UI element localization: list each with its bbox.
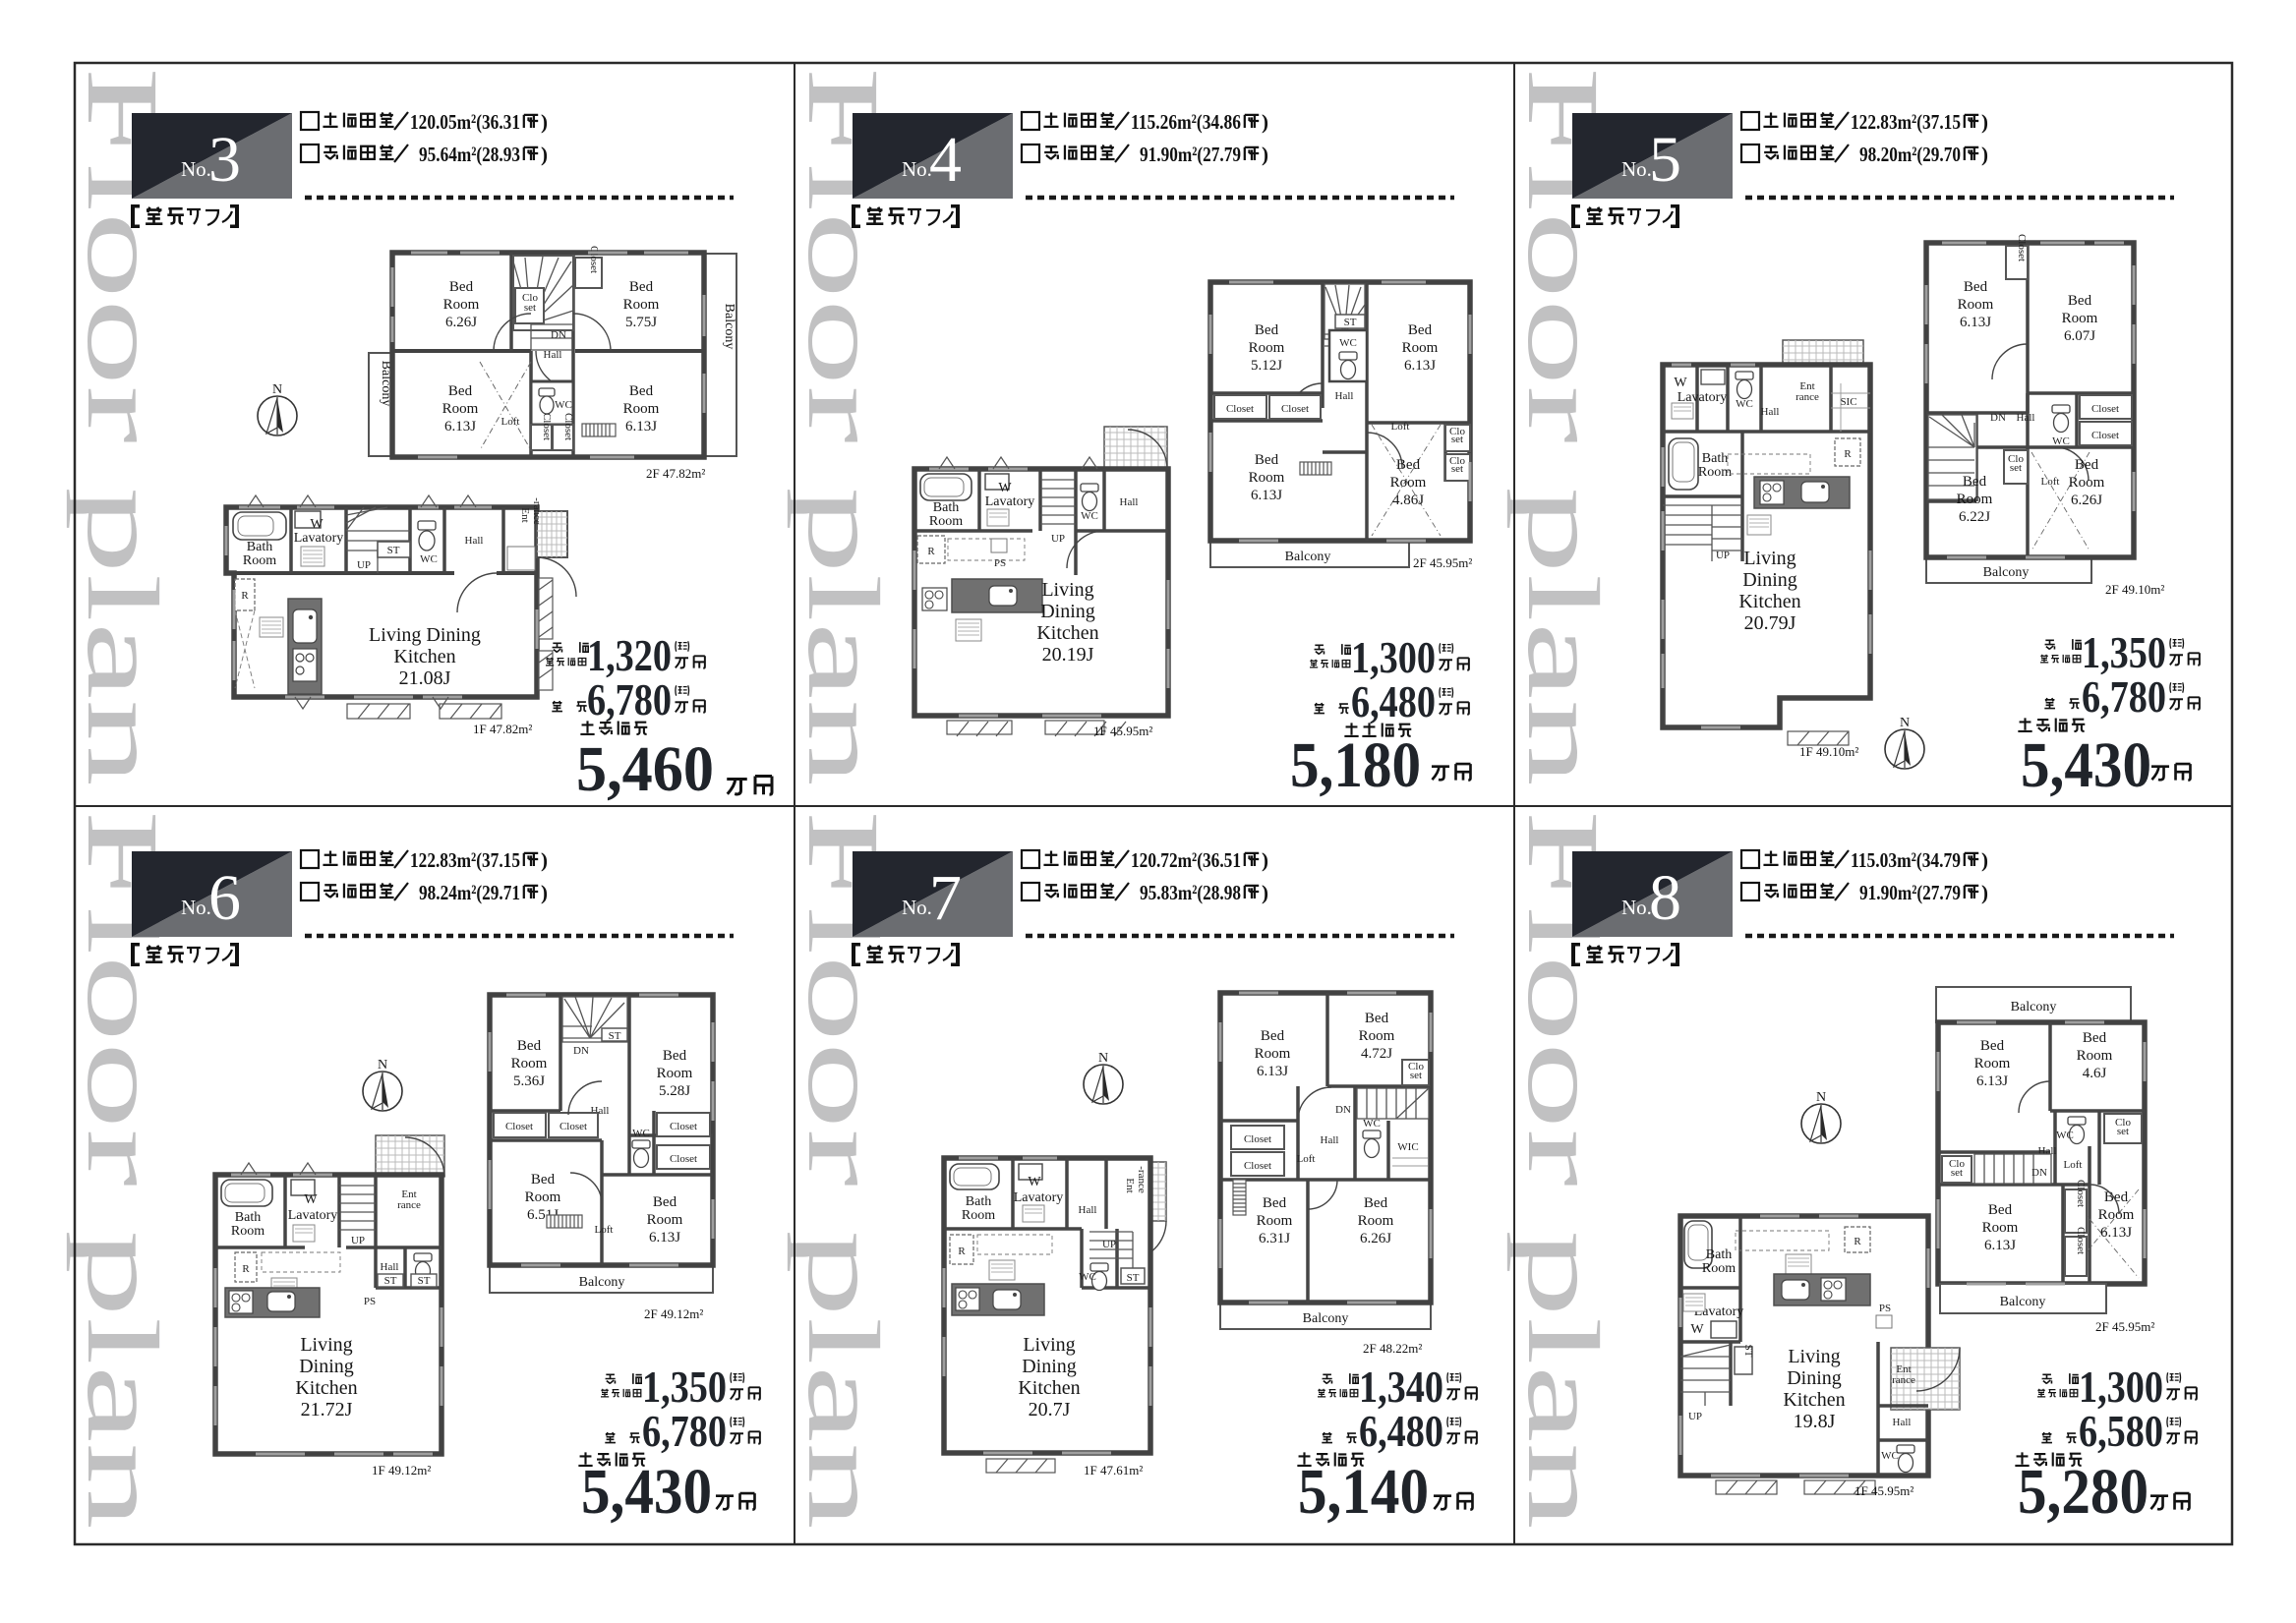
svg-text:Bed: Bed — [1408, 322, 1433, 338]
svg-text:122.83m²(37.15: 122.83m²(37.15 — [410, 848, 520, 872]
svg-text:5.36J: 5.36J — [513, 1073, 545, 1089]
svg-text:DN: DN — [1335, 1104, 1351, 1116]
svg-text:Kitchen: Kitchen — [1783, 1389, 1845, 1411]
svg-text:Dining: Dining — [1022, 1356, 1077, 1377]
svg-text:Bed: Bed — [629, 279, 654, 295]
svg-text:Bath: Bath — [1706, 1247, 1732, 1262]
svg-text:5,280: 5,280 — [2018, 1456, 2149, 1528]
svg-text:Lavatory: Lavatory — [985, 494, 1035, 509]
svg-text:Hall: Hall — [2017, 412, 2035, 424]
svg-text:): ) — [1262, 110, 1268, 134]
svg-text:): ) — [541, 110, 548, 134]
svg-text:Closet: Closet — [670, 1121, 697, 1132]
svg-text:No.: No. — [181, 896, 211, 919]
svg-text:No.: No. — [1621, 157, 1652, 181]
svg-text:Living: Living — [1041, 579, 1093, 601]
svg-text:7: 7 — [929, 862, 962, 934]
svg-text:Room: Room — [2069, 475, 2105, 491]
svg-text:set: set — [524, 302, 536, 314]
svg-text:ST: ST — [609, 1030, 621, 1042]
svg-text:Closet: Closet — [2091, 430, 2119, 441]
svg-text:5.28J: 5.28J — [659, 1083, 690, 1099]
svg-text:Living: Living — [1788, 1346, 1840, 1367]
svg-text:4.72J: 4.72J — [1361, 1046, 1392, 1062]
svg-text:6.13J: 6.13J — [1404, 358, 1436, 374]
svg-text:Bed: Bed — [2068, 293, 2092, 309]
svg-text:PS: PS — [1879, 1303, 1891, 1314]
svg-text:Kitchen: Kitchen — [1036, 622, 1098, 644]
svg-text:Room: Room — [243, 553, 276, 568]
svg-text:98.20m²(29.70: 98.20m²(29.70 — [1859, 143, 1961, 166]
svg-text:Room: Room — [1359, 1028, 1395, 1044]
svg-text:1,350: 1,350 — [642, 1362, 727, 1412]
svg-text:UP: UP — [351, 1235, 365, 1246]
svg-text:Kitchen: Kitchen — [393, 646, 455, 667]
svg-text:5.75J: 5.75J — [625, 315, 657, 330]
svg-text:Room: Room — [1255, 1046, 1291, 1062]
svg-text:Dining: Dining — [1040, 601, 1095, 622]
svg-text:6: 6 — [208, 862, 241, 934]
svg-text:Balcony: Balcony — [579, 1275, 625, 1290]
svg-text:Closet: Closet — [541, 413, 553, 440]
svg-text:Balcony: Balcony — [1303, 1311, 1349, 1326]
svg-text:6,780: 6,780 — [587, 674, 672, 725]
svg-text:Bed: Bed — [449, 279, 474, 295]
svg-text:20.79J: 20.79J — [1744, 612, 1796, 634]
svg-text:-rance: -rance — [531, 497, 543, 525]
svg-text:Closet: Closet — [2075, 1227, 2087, 1254]
svg-text:Bed: Bed — [1365, 1011, 1389, 1026]
svg-text:Room: Room — [647, 1212, 683, 1228]
svg-text:Hall: Hall — [1079, 1204, 1097, 1216]
svg-text:Closet: Closet — [559, 1121, 587, 1132]
svg-text:UP: UP — [357, 559, 371, 571]
svg-text:): ) — [1981, 110, 1988, 134]
svg-text:Hall: Hall — [1321, 1134, 1339, 1146]
svg-text:R: R — [1844, 448, 1852, 460]
svg-text:1,320: 1,320 — [587, 630, 672, 680]
svg-text:Room: Room — [1390, 475, 1427, 491]
svg-text:Balcony: Balcony — [1285, 550, 1331, 564]
svg-text:Room: Room — [1982, 1220, 2019, 1236]
svg-text:Bed: Bed — [531, 1172, 556, 1188]
svg-text:set: set — [1451, 434, 1463, 445]
svg-text:Bed: Bed — [629, 383, 654, 399]
svg-text:1F 45.95m²: 1F 45.95m² — [1093, 724, 1152, 738]
svg-text:Room: Room — [443, 297, 480, 313]
svg-text:Room: Room — [623, 297, 660, 313]
svg-text:Bath: Bath — [1702, 451, 1728, 466]
svg-text:set: set — [1451, 463, 1463, 475]
svg-text:Room: Room — [2098, 1207, 2135, 1223]
svg-text:Closet: Closet — [562, 413, 574, 440]
svg-text:19.8J: 19.8J — [1794, 1411, 1836, 1432]
svg-text:Room: Room — [1702, 1261, 1736, 1276]
svg-text:Kitchen: Kitchen — [1018, 1377, 1080, 1399]
svg-text:No.: No. — [1621, 896, 1652, 919]
svg-text:set: set — [2117, 1126, 2129, 1137]
svg-text:WC: WC — [2056, 1130, 2074, 1141]
svg-text:1F 49.10m²: 1F 49.10m² — [1799, 744, 1858, 759]
svg-text:6.13J: 6.13J — [1960, 315, 1991, 330]
svg-text:Bath: Bath — [247, 540, 272, 554]
svg-text:DN: DN — [551, 329, 566, 341]
svg-text:WC: WC — [2052, 435, 2070, 447]
svg-text:Room: Room — [929, 514, 963, 529]
svg-text:6.26J: 6.26J — [2071, 493, 2102, 508]
svg-text:rance: rance — [1796, 391, 1819, 403]
svg-text:Room: Room — [231, 1224, 265, 1239]
svg-text:6.26J: 6.26J — [1360, 1231, 1391, 1246]
svg-text:Dining: Dining — [299, 1356, 354, 1377]
svg-text:Closet: Closet — [2075, 1180, 2087, 1207]
svg-text:Hall: Hall — [1893, 1417, 1912, 1428]
svg-text:W: W — [310, 517, 324, 532]
svg-text:No.: No. — [902, 896, 932, 919]
svg-text:WIC: WIC — [1397, 1141, 1418, 1153]
svg-text:Balcony: Balcony — [2011, 1000, 2057, 1014]
svg-text:Bed: Bed — [1364, 1195, 1388, 1211]
svg-text:Bed: Bed — [653, 1194, 677, 1210]
svg-text:4: 4 — [929, 124, 962, 196]
svg-text:Bath: Bath — [966, 1194, 991, 1209]
svg-text:Room: Room — [1698, 465, 1732, 480]
svg-text:115.03m²(34.79: 115.03m²(34.79 — [1851, 848, 1961, 872]
svg-text:W: W — [1028, 1175, 1041, 1189]
svg-text:98.24m²(29.71: 98.24m²(29.71 — [419, 881, 520, 904]
svg-text:Loft: Loft — [1391, 421, 1410, 433]
svg-text:Hall: Hall — [381, 1261, 399, 1273]
svg-text:DN: DN — [573, 1045, 589, 1057]
svg-text:ST: ST — [418, 1275, 431, 1287]
svg-text:No.: No. — [902, 157, 932, 181]
svg-text:6,780: 6,780 — [2082, 671, 2166, 722]
svg-text:5,180: 5,180 — [1290, 729, 1421, 801]
svg-text:): ) — [1262, 848, 1268, 872]
svg-text:N: N — [1900, 716, 1910, 730]
svg-text:8: 8 — [1649, 862, 1681, 934]
svg-text:set: set — [1951, 1167, 1963, 1179]
svg-text:DN: DN — [1990, 412, 2006, 424]
svg-text:120.05m²(36.31: 120.05m²(36.31 — [410, 110, 520, 134]
svg-text:Closet: Closet — [588, 246, 600, 273]
svg-text:6,580: 6,580 — [2079, 1406, 2163, 1456]
svg-text:Room: Room — [962, 1208, 995, 1223]
svg-text:Bed: Bed — [1255, 322, 1279, 338]
svg-text:20.19J: 20.19J — [1042, 644, 1094, 666]
svg-text:1F 45.95m²: 1F 45.95m² — [1854, 1483, 1913, 1498]
svg-text:Balcony: Balcony — [2000, 1295, 2046, 1309]
svg-text:6.13J: 6.13J — [2100, 1225, 2132, 1241]
svg-text:Living: Living — [300, 1334, 352, 1356]
svg-text:5,430: 5,430 — [2021, 729, 2151, 801]
svg-text:): ) — [541, 848, 548, 872]
svg-text:Bed: Bed — [517, 1038, 542, 1054]
svg-text:UP: UP — [1051, 533, 1065, 545]
svg-text:Room: Room — [657, 1066, 693, 1081]
svg-text:5: 5 — [1649, 124, 1681, 196]
svg-text:2F 49.10m²: 2F 49.10m² — [2105, 582, 2164, 597]
svg-text:1,340: 1,340 — [1359, 1362, 1443, 1412]
svg-text:Bed: Bed — [2083, 1030, 2107, 1046]
svg-text:): ) — [1981, 881, 1988, 904]
svg-text:N: N — [1098, 1051, 1108, 1066]
svg-text:W: W — [1690, 1322, 1704, 1337]
svg-text:Loft: Loft — [2041, 476, 2060, 488]
svg-text:6.07J: 6.07J — [2064, 328, 2095, 344]
svg-text:rance: rance — [397, 1199, 421, 1211]
svg-text:1,300: 1,300 — [2079, 1362, 2163, 1412]
svg-text:Living Dining: Living Dining — [369, 624, 481, 646]
svg-text:6,780: 6,780 — [642, 1406, 727, 1456]
svg-text:1,350: 1,350 — [2082, 627, 2166, 677]
svg-text:WC: WC — [1339, 337, 1357, 349]
svg-text:Closet: Closet — [1226, 403, 1254, 415]
svg-text:20.7J: 20.7J — [1029, 1399, 1071, 1420]
svg-text:Closet: Closet — [1244, 1160, 1271, 1172]
svg-text:5.12J: 5.12J — [1251, 358, 1282, 374]
svg-text:Balcony: Balcony — [1983, 565, 2030, 580]
svg-text:Bed: Bed — [1255, 452, 1279, 468]
svg-text:3: 3 — [208, 124, 241, 196]
svg-text:Room: Room — [2077, 1048, 2113, 1064]
svg-text:Room: Room — [1249, 340, 1285, 356]
svg-text:set: set — [1410, 1070, 1422, 1081]
svg-text:Bed: Bed — [1988, 1202, 2013, 1218]
svg-text:Balcony: Balcony — [722, 304, 736, 350]
svg-text:Loft: Loft — [595, 1224, 614, 1236]
svg-text:2F 47.82m²: 2F 47.82m² — [646, 466, 705, 481]
svg-text:Bed: Bed — [1396, 457, 1421, 473]
svg-text:Room: Room — [511, 1056, 548, 1072]
svg-text:WC: WC — [1079, 1271, 1096, 1283]
svg-text:): ) — [541, 143, 548, 166]
svg-text:PS: PS — [364, 1296, 376, 1307]
svg-text:Loft: Loft — [1297, 1153, 1316, 1165]
svg-text:6.13J: 6.13J — [1976, 1073, 2008, 1089]
svg-text:WC: WC — [1881, 1450, 1899, 1462]
svg-text:6.13J: 6.13J — [1251, 488, 1282, 503]
svg-text:N: N — [378, 1058, 387, 1072]
svg-text:6.22J: 6.22J — [1959, 509, 1990, 525]
svg-text:R: R — [241, 590, 249, 602]
svg-text:Lavatory: Lavatory — [288, 1208, 338, 1223]
svg-text:Closet: Closet — [2016, 234, 2028, 261]
svg-text:Ent: Ent — [1124, 1178, 1136, 1192]
svg-text:5,460: 5,460 — [576, 733, 714, 805]
svg-text:115.26m²(34.86: 115.26m²(34.86 — [1131, 110, 1241, 134]
svg-text:2F 45.95m²: 2F 45.95m² — [1413, 555, 1472, 570]
svg-text:Room: Room — [1957, 492, 1993, 507]
svg-text:No.: No. — [181, 157, 211, 181]
svg-text:Dining: Dining — [1787, 1367, 1842, 1389]
svg-text:W: W — [304, 1192, 318, 1207]
svg-text:Living: Living — [1023, 1334, 1075, 1356]
svg-text:Living: Living — [1743, 548, 1796, 569]
svg-text:1F 49.12m²: 1F 49.12m² — [372, 1463, 431, 1478]
svg-text:6.13J: 6.13J — [1984, 1238, 2016, 1253]
svg-text:Room: Room — [1358, 1213, 1394, 1229]
svg-text:2F 45.95m²: 2F 45.95m² — [2095, 1319, 2154, 1334]
svg-text:21.72J: 21.72J — [301, 1399, 353, 1420]
svg-text:Room: Room — [1958, 297, 1994, 313]
svg-text:Bed: Bed — [1980, 1038, 2005, 1054]
svg-text:UP: UP — [1102, 1239, 1116, 1250]
svg-text:91.90m²(27.79: 91.90m²(27.79 — [1140, 143, 1241, 166]
svg-text:WC: WC — [555, 399, 572, 411]
svg-text:Lavatory: Lavatory — [294, 531, 344, 546]
svg-text:5,140: 5,140 — [1298, 1456, 1429, 1528]
svg-text:Ent: Ent — [519, 507, 531, 522]
svg-text:21.08J: 21.08J — [399, 667, 451, 689]
svg-text:UP: UP — [1688, 1411, 1702, 1422]
svg-text:Bed: Bed — [1263, 1195, 1287, 1211]
svg-text:ST: ST — [1742, 1345, 1754, 1358]
svg-text:1,300: 1,300 — [1351, 632, 1436, 682]
svg-text:Room: Room — [525, 1189, 561, 1205]
svg-text:W: W — [998, 481, 1012, 495]
svg-text:120.72m²(36.51: 120.72m²(36.51 — [1131, 848, 1241, 872]
svg-text:1F 47.61m²: 1F 47.61m² — [1084, 1463, 1143, 1478]
svg-text:SIC: SIC — [1840, 396, 1856, 408]
svg-text:Bed: Bed — [448, 383, 473, 399]
svg-text:Closet: Closet — [505, 1121, 533, 1132]
svg-text:WC: WC — [1736, 398, 1753, 410]
svg-text:WC: WC — [632, 1128, 650, 1139]
svg-text:Room: Room — [2062, 311, 2098, 326]
svg-text:Room: Room — [1257, 1213, 1293, 1229]
svg-text:Kitchen: Kitchen — [295, 1377, 357, 1399]
svg-text:PS: PS — [994, 557, 1006, 569]
svg-text:): ) — [1981, 143, 1988, 166]
svg-text:6.13J: 6.13J — [444, 419, 476, 435]
svg-text:Room: Room — [1974, 1056, 2011, 1072]
svg-text:): ) — [541, 881, 548, 904]
svg-text:Bed: Bed — [1261, 1028, 1285, 1044]
svg-text:ST: ST — [1127, 1272, 1140, 1284]
svg-text:Hall: Hall — [1120, 496, 1139, 508]
svg-text:R: R — [958, 1246, 966, 1257]
svg-text:N: N — [1816, 1090, 1826, 1105]
svg-text:Room: Room — [1402, 340, 1439, 356]
svg-text:95.83m²(28.98: 95.83m²(28.98 — [1140, 881, 1241, 904]
svg-text:122.83m²(37.15: 122.83m²(37.15 — [1851, 110, 1961, 134]
svg-text:set: set — [2010, 462, 2022, 474]
svg-text:4.86J: 4.86J — [1392, 493, 1424, 508]
svg-text:Hall: Hall — [1335, 390, 1354, 402]
svg-text:95.64m²(28.93: 95.64m²(28.93 — [419, 143, 520, 166]
svg-text:Bath: Bath — [235, 1210, 261, 1225]
svg-text:2F 49.12m²: 2F 49.12m² — [644, 1306, 703, 1321]
svg-text:6,480: 6,480 — [1359, 1406, 1443, 1456]
svg-text:WC: WC — [1081, 510, 1098, 522]
svg-text:6.13J: 6.13J — [625, 419, 657, 435]
svg-text:Bed: Bed — [1964, 279, 1988, 295]
svg-text:2F 48.22m²: 2F 48.22m² — [1363, 1341, 1422, 1356]
svg-text:Dining: Dining — [1742, 569, 1797, 591]
svg-text:91.90m²(27.79: 91.90m²(27.79 — [1859, 881, 1961, 904]
svg-text:Bed: Bed — [663, 1048, 687, 1064]
svg-text:R: R — [242, 1263, 250, 1275]
svg-text:4.6J: 4.6J — [2083, 1066, 2107, 1081]
svg-text:1F 47.82m²: 1F 47.82m² — [473, 722, 532, 736]
svg-text:Room: Room — [442, 401, 479, 417]
svg-text:Loft: Loft — [501, 416, 520, 428]
svg-text:N: N — [272, 382, 282, 397]
svg-text:): ) — [1262, 143, 1268, 166]
svg-text:6.13J: 6.13J — [1257, 1064, 1288, 1079]
svg-text:6.26J: 6.26J — [445, 315, 477, 330]
svg-text:Hall: Hall — [1761, 406, 1780, 418]
svg-text:Lavatory: Lavatory — [1014, 1190, 1064, 1205]
svg-text:6,480: 6,480 — [1351, 676, 1436, 726]
svg-text:ST: ST — [384, 1275, 397, 1287]
svg-text:Closet: Closet — [2091, 403, 2119, 415]
svg-text:5,430: 5,430 — [581, 1456, 712, 1528]
svg-text:6.31J: 6.31J — [1259, 1231, 1290, 1246]
svg-text:rance: rance — [1892, 1374, 1915, 1386]
svg-text:R: R — [927, 546, 935, 557]
svg-text:Closet: Closet — [670, 1153, 697, 1165]
svg-text:Room: Room — [1249, 470, 1285, 486]
svg-text:-rance: -rance — [1136, 1166, 1148, 1193]
svg-text:ST: ST — [1344, 317, 1357, 328]
svg-text:Closet: Closet — [1281, 403, 1309, 415]
svg-text:Hall: Hall — [544, 349, 562, 361]
svg-text:): ) — [1981, 848, 1988, 872]
svg-text:R: R — [1854, 1236, 1861, 1247]
svg-text:Kitchen: Kitchen — [1738, 591, 1800, 612]
svg-text:Room: Room — [623, 401, 660, 417]
svg-text:6.13J: 6.13J — [649, 1230, 680, 1246]
svg-text:WC: WC — [1363, 1118, 1381, 1130]
svg-text:Closet: Closet — [1244, 1133, 1271, 1145]
svg-text:): ) — [1262, 881, 1268, 904]
svg-text:UP: UP — [1716, 550, 1730, 561]
svg-text:DN: DN — [2031, 1167, 2047, 1179]
svg-text:ST: ST — [387, 545, 400, 556]
svg-text:Hall: Hall — [465, 535, 484, 547]
svg-text:W: W — [1674, 376, 1687, 390]
svg-text:WC: WC — [420, 553, 438, 565]
svg-text:Bed: Bed — [1963, 474, 1987, 490]
svg-text:Loft: Loft — [2064, 1159, 2083, 1171]
svg-text:Bath: Bath — [933, 500, 959, 515]
svg-text:Bed: Bed — [2075, 457, 2099, 473]
